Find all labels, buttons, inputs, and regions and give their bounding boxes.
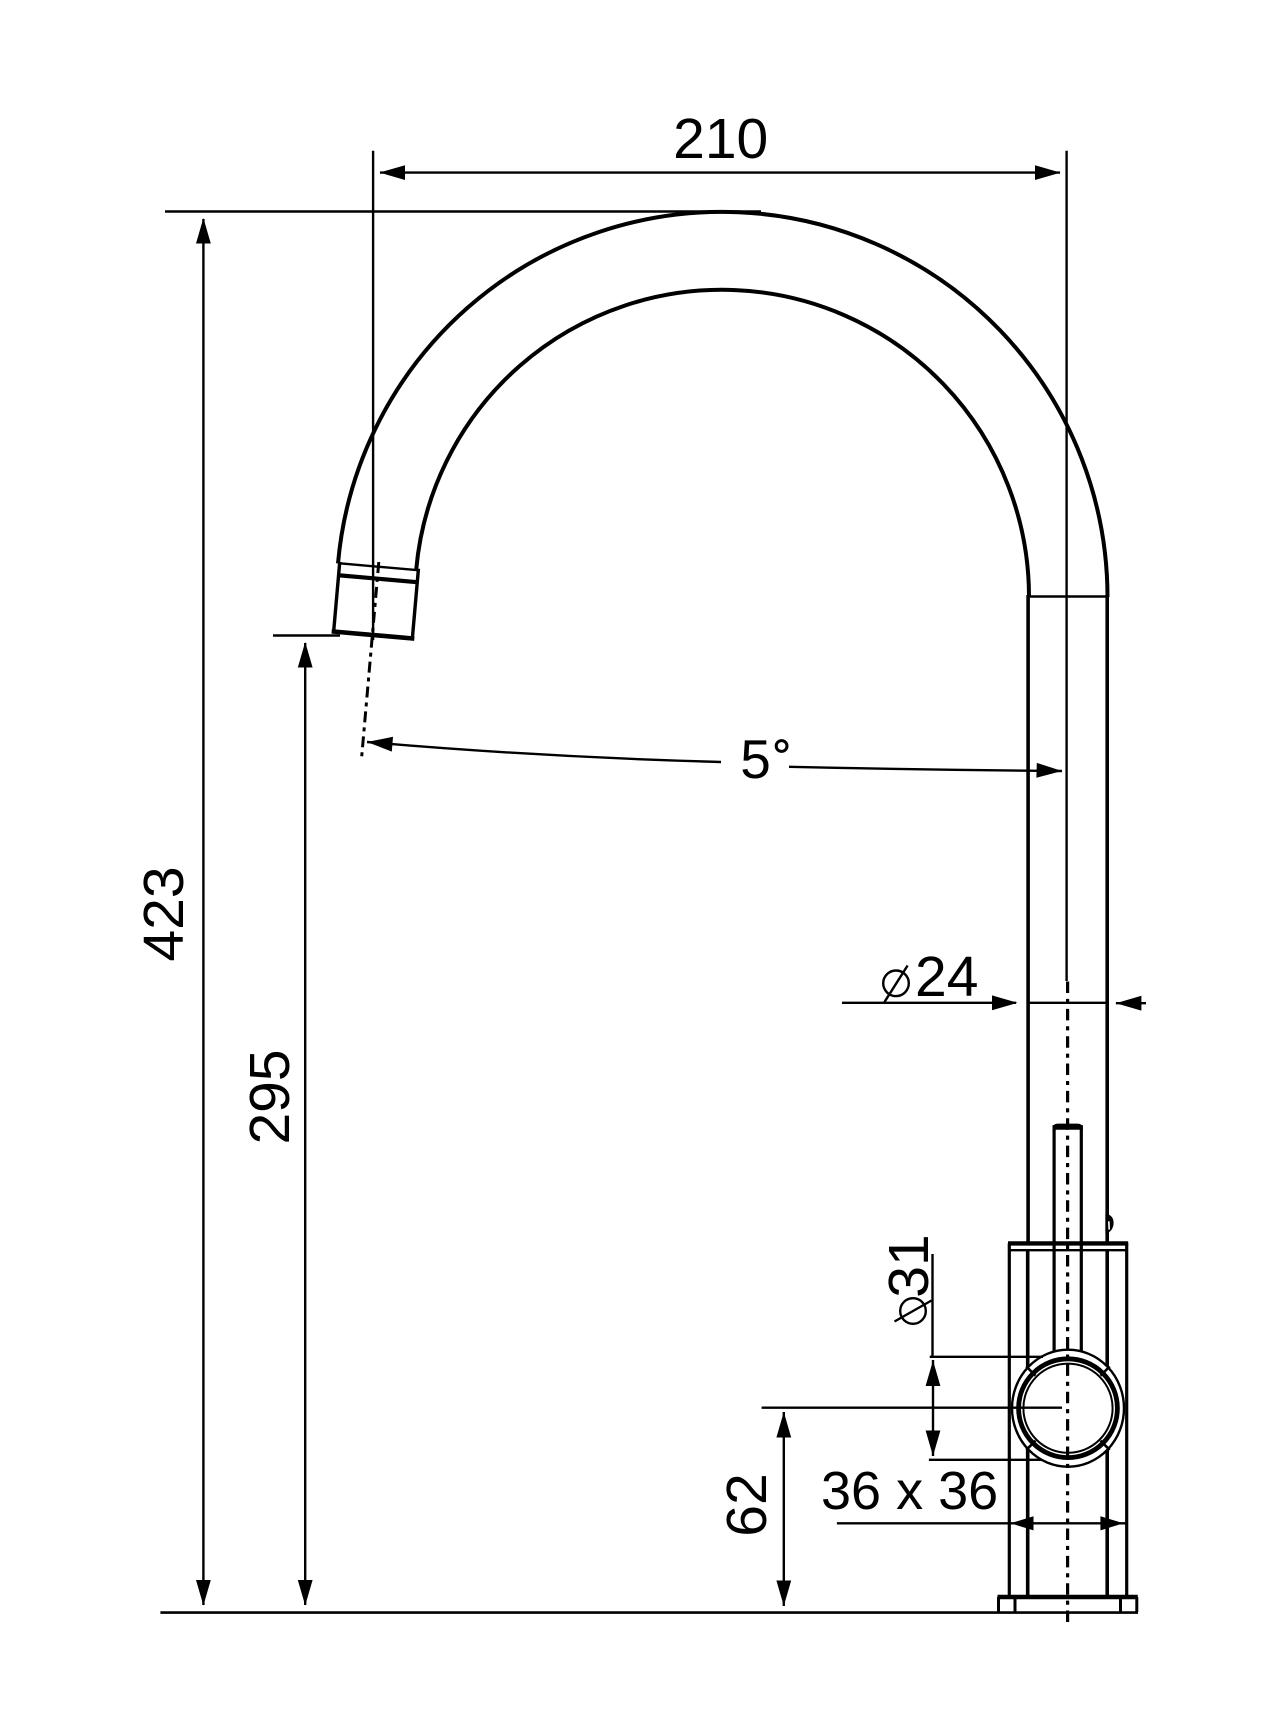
svg-text:295: 295: [238, 1049, 302, 1144]
svg-text:36 x 36: 36 x 36: [821, 1461, 998, 1521]
svg-text:62: 62: [715, 1473, 779, 1536]
svg-text:5: 5: [740, 728, 771, 790]
svg-text:423: 423: [132, 866, 196, 961]
svg-text:24: 24: [915, 945, 978, 1009]
svg-text:210: 210: [673, 107, 768, 171]
